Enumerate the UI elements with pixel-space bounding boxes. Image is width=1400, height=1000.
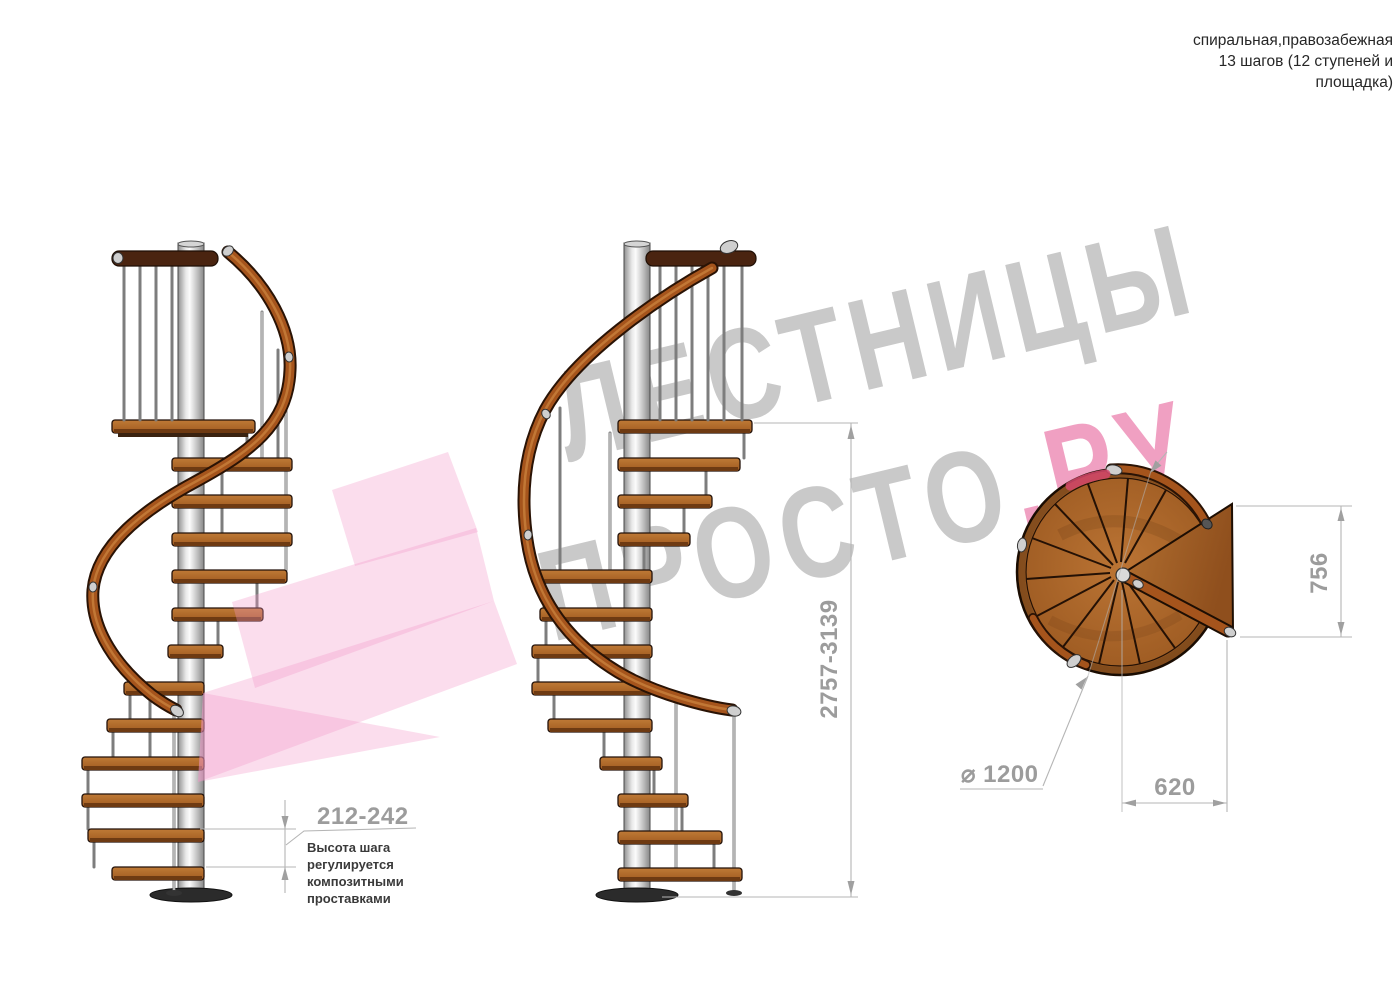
tread-edge (534, 691, 650, 695)
pole-cap (624, 241, 650, 247)
tread-edge (90, 838, 202, 842)
tread-edge (84, 766, 202, 770)
dim-total-height-label: 2757-3139 (816, 599, 843, 718)
tread-edge (540, 579, 650, 583)
pole-base-flange (150, 888, 232, 902)
rod-foot (166, 890, 182, 896)
title-line-2: 13 шагов (12 ступеней и (1193, 51, 1393, 72)
tread-edge (620, 542, 688, 546)
note-line-1: Высота шага (307, 839, 404, 856)
title-line-3: площадка) (1193, 72, 1393, 93)
tread-edge (174, 504, 290, 508)
dim-diameter-label: ⌀ 1200 (961, 761, 1039, 788)
note-line-2: регулируется (307, 856, 404, 873)
tread-edge (109, 728, 202, 732)
tread-edge (602, 766, 660, 770)
title-block: спиральная,правозабежная 13 шагов (12 ст… (1193, 30, 1393, 93)
pole-base-flange (596, 888, 678, 902)
rod-foot (726, 890, 742, 896)
side-view-left (82, 241, 294, 902)
landing-support (118, 433, 248, 437)
pole-cap (178, 241, 204, 247)
tread-edge (114, 429, 253, 433)
tread-edge (620, 429, 750, 433)
rail-end-cap (113, 253, 123, 264)
dim-step-height-label: 212-242 (317, 803, 409, 830)
tread-edge (620, 803, 686, 807)
staircase-drawing: ЛЕСТНИЦЫ ПРОСТО.РУ (0, 0, 1400, 1000)
tread-edge (174, 542, 290, 546)
tread-edge (126, 691, 202, 695)
tread-edge (620, 877, 740, 881)
tread-edge (84, 803, 202, 807)
tread-edge (174, 579, 285, 583)
tread-edge (620, 467, 738, 471)
handrail-joint (524, 530, 533, 541)
dim-landing-width-label: 620 (1154, 774, 1196, 801)
note-line-4: проставками (307, 890, 404, 907)
dimension-landing-side: 756 (1236, 506, 1352, 637)
dim-landing-side-label: 756 (1306, 552, 1333, 594)
title-line-1: спиральная,правозабежная (1193, 30, 1393, 51)
drawing-canvas: ЛЕСТНИЦЫ ПРОСТО.РУ (0, 0, 1400, 1000)
tread-edge (170, 654, 221, 658)
handrail-joint (89, 582, 98, 593)
tread-edge (114, 876, 202, 880)
note-line-3: композитными (307, 873, 404, 890)
step-height-note: Высота шага регулируется композитными пр… (307, 839, 404, 907)
tread-edge (620, 504, 710, 508)
top-rail-bar (112, 251, 218, 266)
tread-edge (620, 840, 720, 844)
tread-edge (550, 728, 650, 732)
top-rail-bar (646, 251, 756, 266)
